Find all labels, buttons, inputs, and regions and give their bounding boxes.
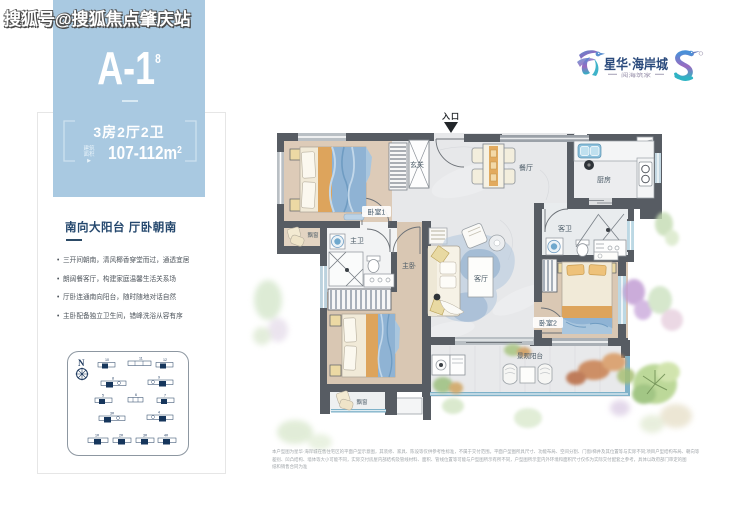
svg-text:卧室2: 卧室2: [539, 319, 557, 328]
svg-text:主卫: 主卫: [350, 236, 364, 245]
svg-text:厨房: 厨房: [597, 175, 611, 184]
svg-text:入口: 入口: [441, 112, 460, 121]
svg-text:玄关: 玄关: [410, 160, 424, 169]
svg-text:客卫: 客卫: [558, 224, 572, 233]
svg-text:餐厅: 餐厅: [519, 163, 533, 172]
svg-text:卧室1: 卧室1: [368, 208, 386, 217]
svg-text:景观阳台: 景观阳台: [517, 351, 543, 360]
svg-text:飘窗: 飘窗: [307, 231, 319, 239]
svg-text:主卧: 主卧: [402, 261, 416, 270]
svg-text:客厅: 客厅: [474, 274, 488, 283]
svg-text:飘窗: 飘窗: [356, 398, 368, 406]
